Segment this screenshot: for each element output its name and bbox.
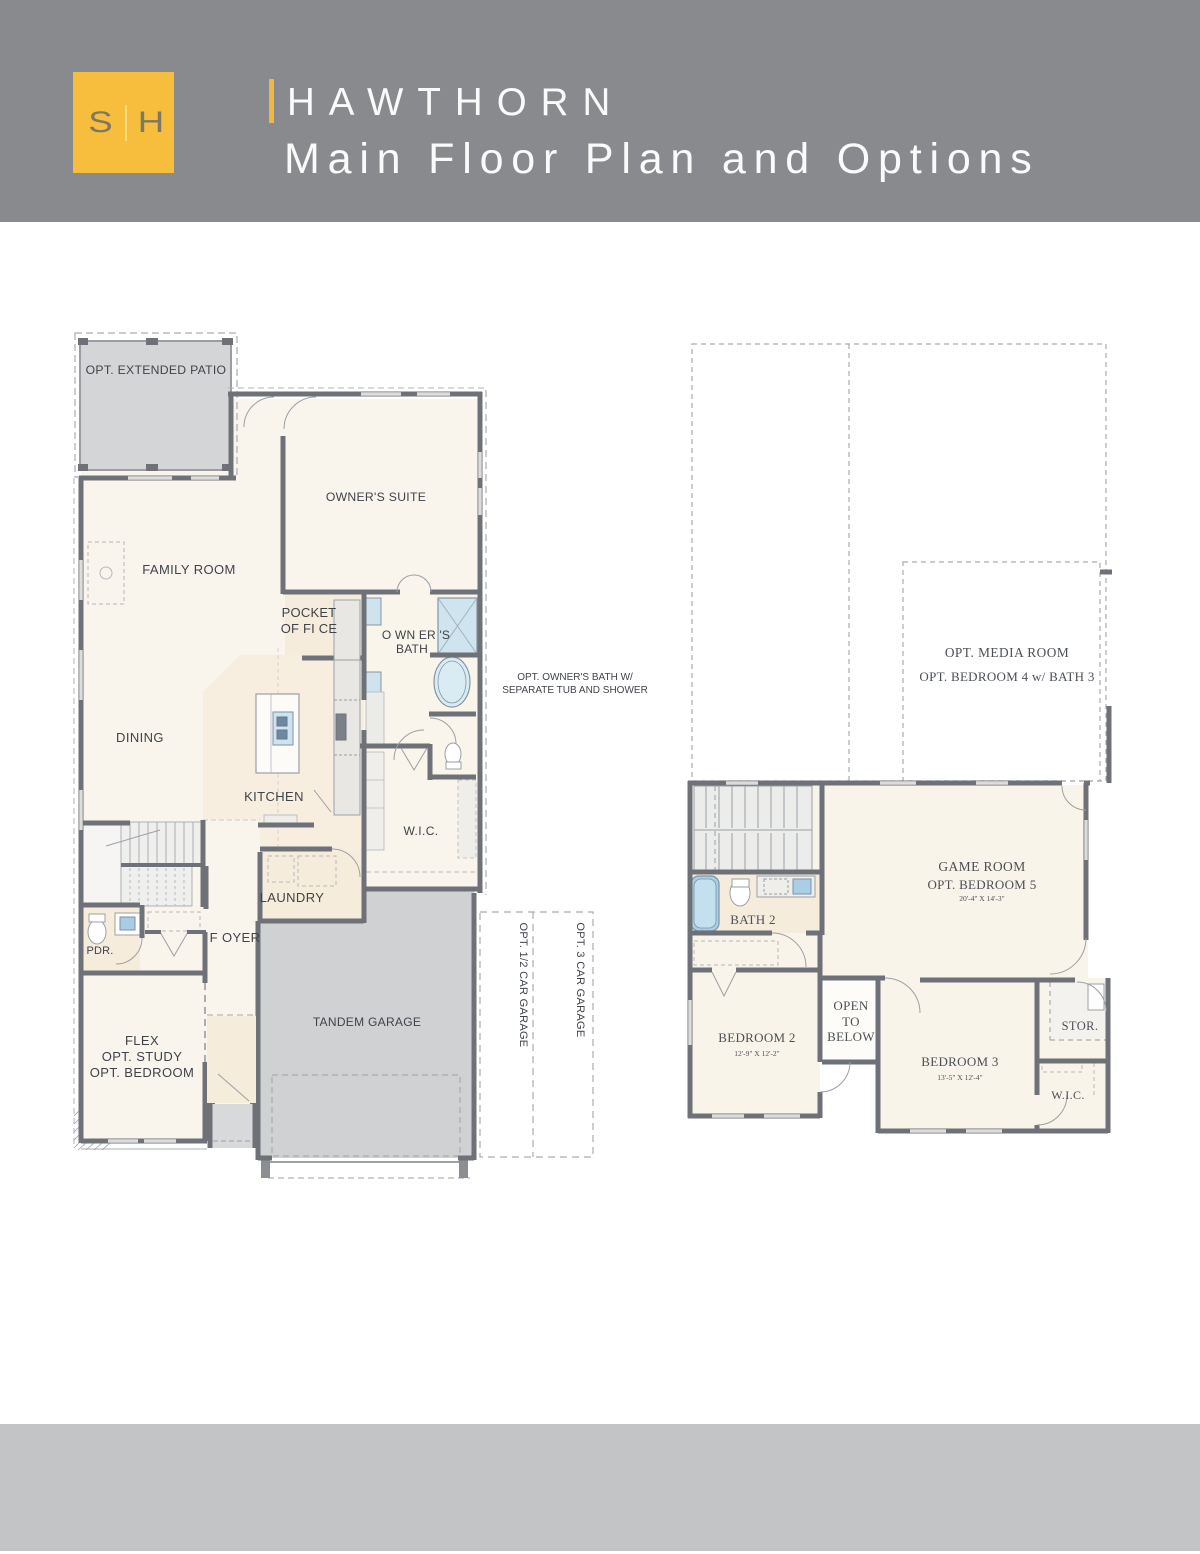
svg-text:OF FI CE: OF FI CE: [281, 621, 338, 636]
svg-text:13'-5" X 12'-4": 13'-5" X 12'-4": [937, 1073, 983, 1082]
svg-text:W.I.C.: W.I.C.: [403, 824, 438, 838]
svg-text:BEDROOM 2: BEDROOM 2: [718, 1030, 795, 1045]
svg-text:OWNER'S SUITE: OWNER'S SUITE: [326, 490, 426, 504]
svg-text:TO: TO: [842, 1014, 860, 1029]
svg-text:20'-4" X 14'-3": 20'-4" X 14'-3": [959, 894, 1005, 903]
svg-text:F OYER: F OYER: [210, 930, 261, 945]
svg-text:OPT. OWNER'S BATH W/: OPT. OWNER'S BATH W/: [517, 672, 633, 683]
svg-text:W.I.C.: W.I.C.: [1051, 1088, 1085, 1102]
svg-text:FAMILY ROOM: FAMILY ROOM: [142, 562, 236, 577]
svg-text:DINING: DINING: [116, 730, 164, 745]
svg-text:12'-9" X 12'-2": 12'-9" X 12'-2": [734, 1049, 780, 1058]
svg-text:STOR.: STOR.: [1062, 1019, 1099, 1033]
svg-text:OPT. STUDY: OPT. STUDY: [102, 1049, 183, 1064]
svg-text:KITCHEN: KITCHEN: [244, 789, 304, 804]
svg-text:LAUNDRY: LAUNDRY: [260, 890, 325, 905]
svg-text:GAME ROOM: GAME ROOM: [938, 859, 1025, 874]
svg-text:O WN ER 'S: O WN ER 'S: [382, 628, 450, 642]
svg-text:BEDROOM 3: BEDROOM 3: [921, 1054, 998, 1069]
svg-text:TANDEM GARAGE: TANDEM GARAGE: [313, 1015, 421, 1029]
svg-text:BATH: BATH: [396, 642, 428, 656]
svg-text:BELOW: BELOW: [827, 1029, 875, 1044]
svg-text:PDR.: PDR.: [86, 945, 113, 957]
svg-text:SEPARATE TUB AND SHOWER: SEPARATE TUB AND SHOWER: [502, 685, 648, 696]
svg-text:OPT. BEDROOM 4 w/ BATH 3: OPT. BEDROOM 4 w/ BATH 3: [919, 669, 1094, 684]
svg-text:FLEX: FLEX: [125, 1033, 159, 1048]
svg-text:POCKET: POCKET: [282, 605, 337, 620]
svg-text:BATH 2: BATH 2: [730, 912, 776, 927]
svg-text:OPT. MEDIA ROOM: OPT. MEDIA ROOM: [945, 645, 1069, 660]
svg-text:OPT. 1/2 CAR GARAGE: OPT. 1/2 CAR GARAGE: [517, 923, 529, 1048]
svg-text:OPEN: OPEN: [833, 998, 868, 1013]
svg-text:OPT. 3 CAR GARAGE: OPT. 3 CAR GARAGE: [574, 922, 586, 1037]
svg-text:OPT. BEDROOM: OPT. BEDROOM: [90, 1065, 194, 1080]
svg-text:OPT. BEDROOM 5: OPT. BEDROOM 5: [927, 877, 1036, 892]
svg-text:OPT. EXTENDED PATIO: OPT. EXTENDED PATIO: [86, 363, 227, 377]
